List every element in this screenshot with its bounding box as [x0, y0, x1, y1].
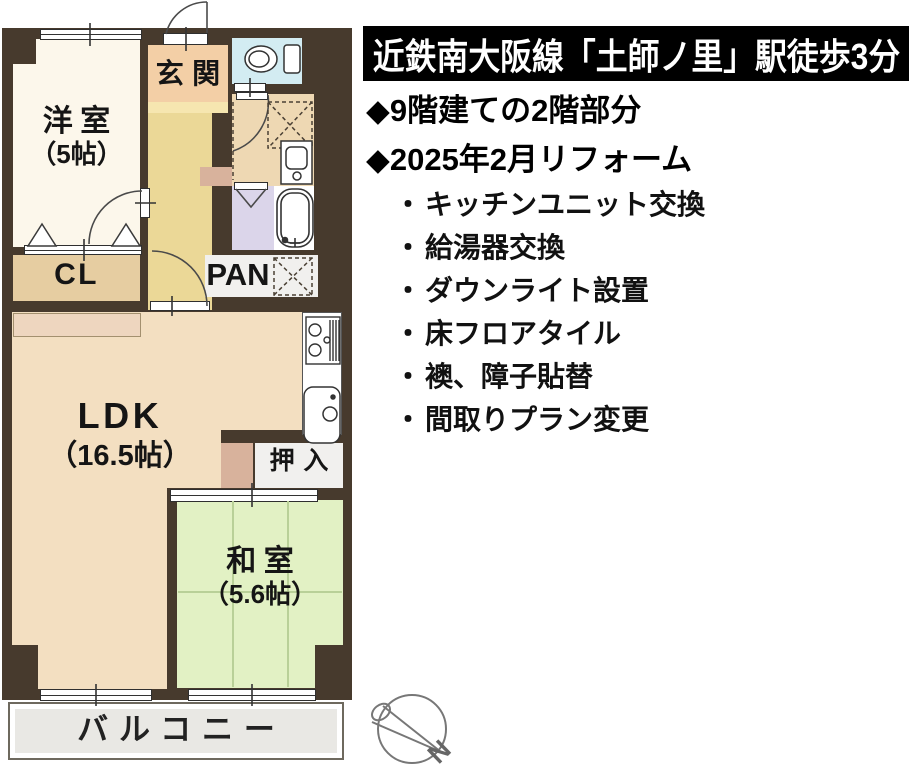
label-oshiire: 押入 — [255, 447, 343, 476]
room-name: 玄関 — [156, 58, 229, 90]
window-ldk-balcony — [40, 689, 152, 701]
room-ldk — [12, 312, 167, 689]
wall-stub-pink — [200, 167, 232, 186]
ldk-ledge — [13, 313, 141, 337]
room-name: 和室 — [226, 545, 301, 580]
room-bath-floor — [232, 186, 274, 250]
label-pantry: PAN — [205, 257, 271, 293]
floorplan: 洋室 （5帖） 玄関 CL PAN LDK （16.5帖） 押入 和室 （5.6… — [0, 0, 360, 768]
bullet: ・ — [394, 398, 422, 438]
highlight-floor: ◆9階建ての2階部分 — [366, 85, 641, 130]
room-size: （5.6帖） — [203, 580, 317, 610]
room-name: バルコニー — [77, 712, 286, 748]
room-bath-tubarea — [274, 186, 314, 250]
window-western-top — [40, 29, 142, 40]
door-western — [140, 188, 150, 218]
entrance-step — [148, 102, 228, 113]
station-banner: 近鉄南大阪線「土師ノ里」駅徒歩3分 — [363, 26, 909, 81]
label-closet: CL — [13, 258, 140, 293]
room-name: CL — [54, 258, 99, 293]
list-item: ・間取りプラン変更 — [394, 396, 705, 439]
list-item: ・キッチンユニット交換 — [394, 181, 705, 224]
bullet: ・ — [394, 269, 422, 309]
label-entrance: 玄関 — [148, 58, 228, 90]
sliding-door-japanese-top — [170, 489, 318, 502]
door-toilet — [234, 83, 266, 92]
door-entry — [163, 33, 208, 45]
pillar-bottom-left — [2, 645, 38, 700]
label-balcony: バルコニー — [8, 712, 344, 748]
renovation-list: ・キッチンユニット交換 ・給湯器交換 ・ダウンライト設置 ・床フロアタイル ・襖… — [394, 181, 705, 439]
bullet: ・ — [394, 183, 422, 223]
station-banner-text: 近鉄南大阪線「土師ノ里」駅徒歩3分 — [363, 28, 900, 80]
door-bath — [234, 182, 268, 190]
pillar-top-left — [2, 28, 36, 64]
room-name: PAN — [206, 257, 269, 293]
room-name: 洋室 — [43, 105, 118, 140]
door-washroom — [236, 92, 268, 100]
diamond-marker: ◆ — [366, 142, 390, 177]
list-item: ・給湯器交換 — [394, 224, 705, 267]
room-size: （16.5帖） — [48, 440, 191, 473]
compass-north-label: N — [422, 734, 457, 768]
flyer: 洋室 （5帖） 玄関 CL PAN LDK （16.5帖） 押入 和室 （5.6… — [0, 0, 912, 768]
bullet: ・ — [394, 312, 422, 352]
compass-icon: N — [369, 695, 457, 768]
room-name: LDK — [78, 395, 163, 436]
label-western-room: 洋室 （5帖） — [13, 105, 140, 169]
bullet: ・ — [394, 226, 422, 266]
bullet: ・ — [394, 355, 422, 395]
room-size: （5帖） — [30, 140, 122, 170]
room-washroom — [232, 94, 314, 186]
list-item: ・床フロアタイル — [394, 310, 705, 353]
window-japanese-balcony — [188, 689, 316, 701]
highlight-renovation: ◆2025年2月リフォーム — [366, 134, 692, 179]
kitchen-counter — [302, 312, 342, 435]
sliding-door-closet — [24, 245, 142, 255]
label-japanese-room: 和室 （5.6帖） — [177, 545, 343, 609]
list-item: ・襖、障子貼替 — [394, 353, 705, 396]
diamond-marker: ◆ — [366, 93, 390, 128]
hallway — [148, 113, 212, 310]
room-toilet — [232, 38, 302, 84]
door-hall-ldk — [150, 301, 210, 311]
list-item: ・ダウンライト設置 — [394, 267, 705, 310]
wall-column-pink — [221, 443, 253, 488]
pillar-bottom-right — [315, 645, 352, 700]
room-name: 押入 — [270, 447, 338, 476]
label-ldk: LDK （16.5帖） — [30, 395, 210, 474]
